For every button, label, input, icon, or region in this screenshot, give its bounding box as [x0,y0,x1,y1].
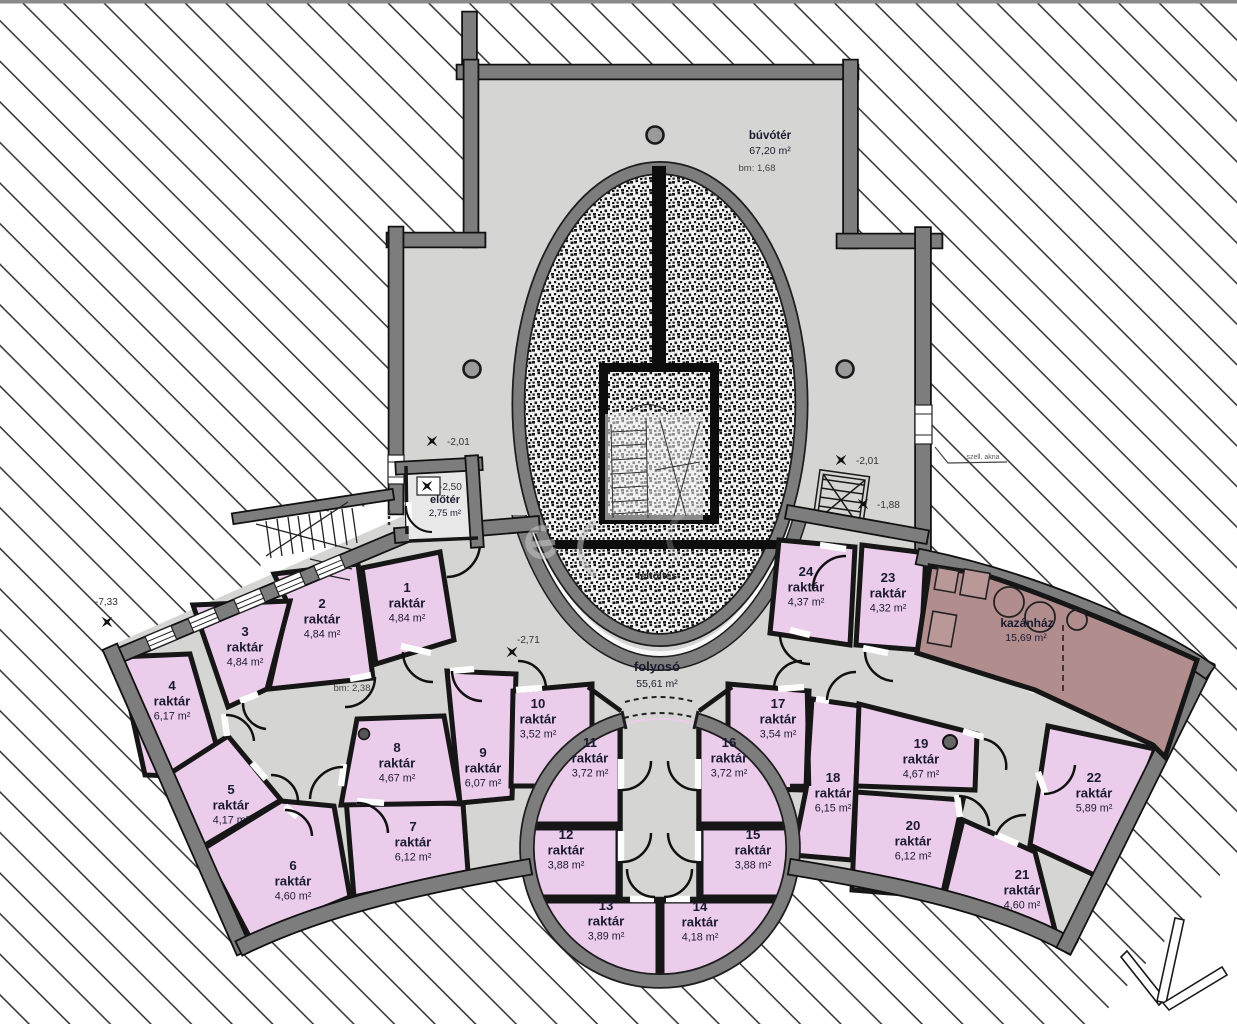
svg-text:11: 11 [583,735,597,750]
svg-text:3,88 m²: 3,88 m² [735,860,772,872]
svg-text:6: 6 [289,858,296,873]
svg-text:8: 8 [393,740,400,755]
svg-text:raktár: raktár [395,835,432,850]
svg-text:raktár: raktár [760,712,797,727]
svg-text:6,17 m²: 6,17 m² [154,711,191,723]
svg-text:15: 15 [746,827,761,842]
svg-text:raktár: raktár [379,756,416,771]
svg-text:13: 13 [599,898,614,913]
svg-text:4,84 m²: 4,84 m² [389,613,426,625]
svg-text:-7,33: -7,33 [95,597,118,608]
svg-text:raktár: raktár [788,580,825,595]
svg-text:3,72 m²: 3,72 m² [711,768,748,780]
svg-text:folyosó: folyosó [634,659,680,674]
svg-text:bm: 1,68: bm: 1,68 [739,163,776,174]
svg-text:23: 23 [881,570,896,585]
svg-text:4,32 m²: 4,32 m² [870,603,907,615]
svg-text:6,07 m²: 6,07 m² [465,778,502,790]
svg-text:raktár: raktár [682,915,719,930]
svg-text:20: 20 [906,818,921,833]
svg-text:5,89 m²: 5,89 m² [1076,803,1113,815]
svg-text:kazánház: kazánház [1000,616,1053,630]
svg-text:4,18 m²: 4,18 m² [682,932,719,944]
svg-text:3,72 m²: 3,72 m² [572,768,609,780]
svg-text:18: 18 [826,770,841,785]
svg-text:6,15 m²: 6,15 m² [815,803,852,815]
svg-text:raktár: raktár [465,761,502,776]
svg-text:24: 24 [799,564,814,579]
svg-text:10: 10 [531,696,546,711]
svg-text:21: 21 [1015,867,1030,882]
svg-text:raktár: raktár [711,751,748,766]
svg-text:raktár: raktár [520,712,557,727]
svg-text:16: 16 [722,735,737,750]
svg-text:3: 3 [241,624,248,639]
svg-text:5: 5 [227,782,234,797]
svg-text:raktár: raktár [227,640,264,655]
svg-text:raktár: raktár [389,596,426,611]
svg-text:22: 22 [1087,770,1102,785]
svg-text:3,88 m²: 3,88 m² [548,860,585,872]
svg-text:4,17 m²: 4,17 m² [213,815,250,827]
svg-text:-2,01: -2,01 [856,456,879,467]
svg-text:-1,88: -1,88 [877,500,900,511]
svg-text:3,54 m²: 3,54 m² [760,729,797,741]
svg-text:feltöltés: feltöltés [637,570,677,582]
svg-text:raktár: raktár [154,694,191,709]
svg-text:2,75 m²: 2,75 m² [429,508,461,519]
svg-text:-2,71: -2,71 [517,635,540,646]
svg-text:búvótér: búvótér [749,130,792,142]
svg-text:19: 19 [914,736,929,751]
svg-text:1: 1 [403,580,410,595]
svg-text:raktár: raktár [870,586,907,601]
svg-text:2: 2 [318,596,325,611]
svg-text:6,12 m²: 6,12 m² [395,852,432,864]
svg-text:55,61 m²: 55,61 m² [636,678,678,690]
svg-text:4,67 m²: 4,67 m² [379,773,416,785]
svg-text:raktár: raktár [1004,883,1041,898]
svg-text:4,67 m²: 4,67 m² [903,769,940,781]
svg-text:raktár: raktár [572,751,609,766]
svg-text:raktár: raktár [588,914,625,929]
svg-text:4,84 m²: 4,84 m² [227,657,264,669]
svg-text:12: 12 [559,827,574,842]
svg-text:7: 7 [409,819,416,834]
svg-text:17: 17 [771,696,786,711]
svg-text:szell. akna: szell. akna [966,454,999,461]
svg-text:raktár: raktár [548,843,585,858]
svg-text:4,60 m²: 4,60 m² [275,891,312,903]
svg-text:raktár: raktár [1076,786,1113,801]
svg-text:raktár: raktár [895,834,932,849]
svg-text:raktár: raktár [815,786,852,801]
svg-text:raktár: raktár [213,798,250,813]
svg-text:raktár: raktár [275,874,312,889]
svg-text:67,20 m²: 67,20 m² [749,145,791,157]
svg-text:4: 4 [168,678,176,693]
svg-text:3,52 m²: 3,52 m² [520,729,557,741]
svg-text:raktár: raktár [304,612,341,627]
svg-text:-2,50: -2,50 [439,482,462,493]
svg-text:3,89 m²: 3,89 m² [588,931,625,943]
svg-text:bm: 2,38: bm: 2,38 [334,683,371,694]
svg-text:előtér: előtér [430,494,461,506]
svg-text:-2,01: -2,01 [447,437,470,448]
svg-text:15,69 m²: 15,69 m² [1005,632,1047,644]
svg-text:raktár: raktár [903,752,940,767]
svg-text:6,12 m²: 6,12 m² [895,851,932,863]
svg-text:4,60 m²: 4,60 m² [1004,900,1041,912]
svg-text:9: 9 [479,745,486,760]
svg-text:raktár: raktár [735,843,772,858]
svg-text:4,37 m²: 4,37 m² [788,597,825,609]
svg-text:14: 14 [693,899,708,914]
svg-text:4,84 m²: 4,84 m² [304,629,341,641]
